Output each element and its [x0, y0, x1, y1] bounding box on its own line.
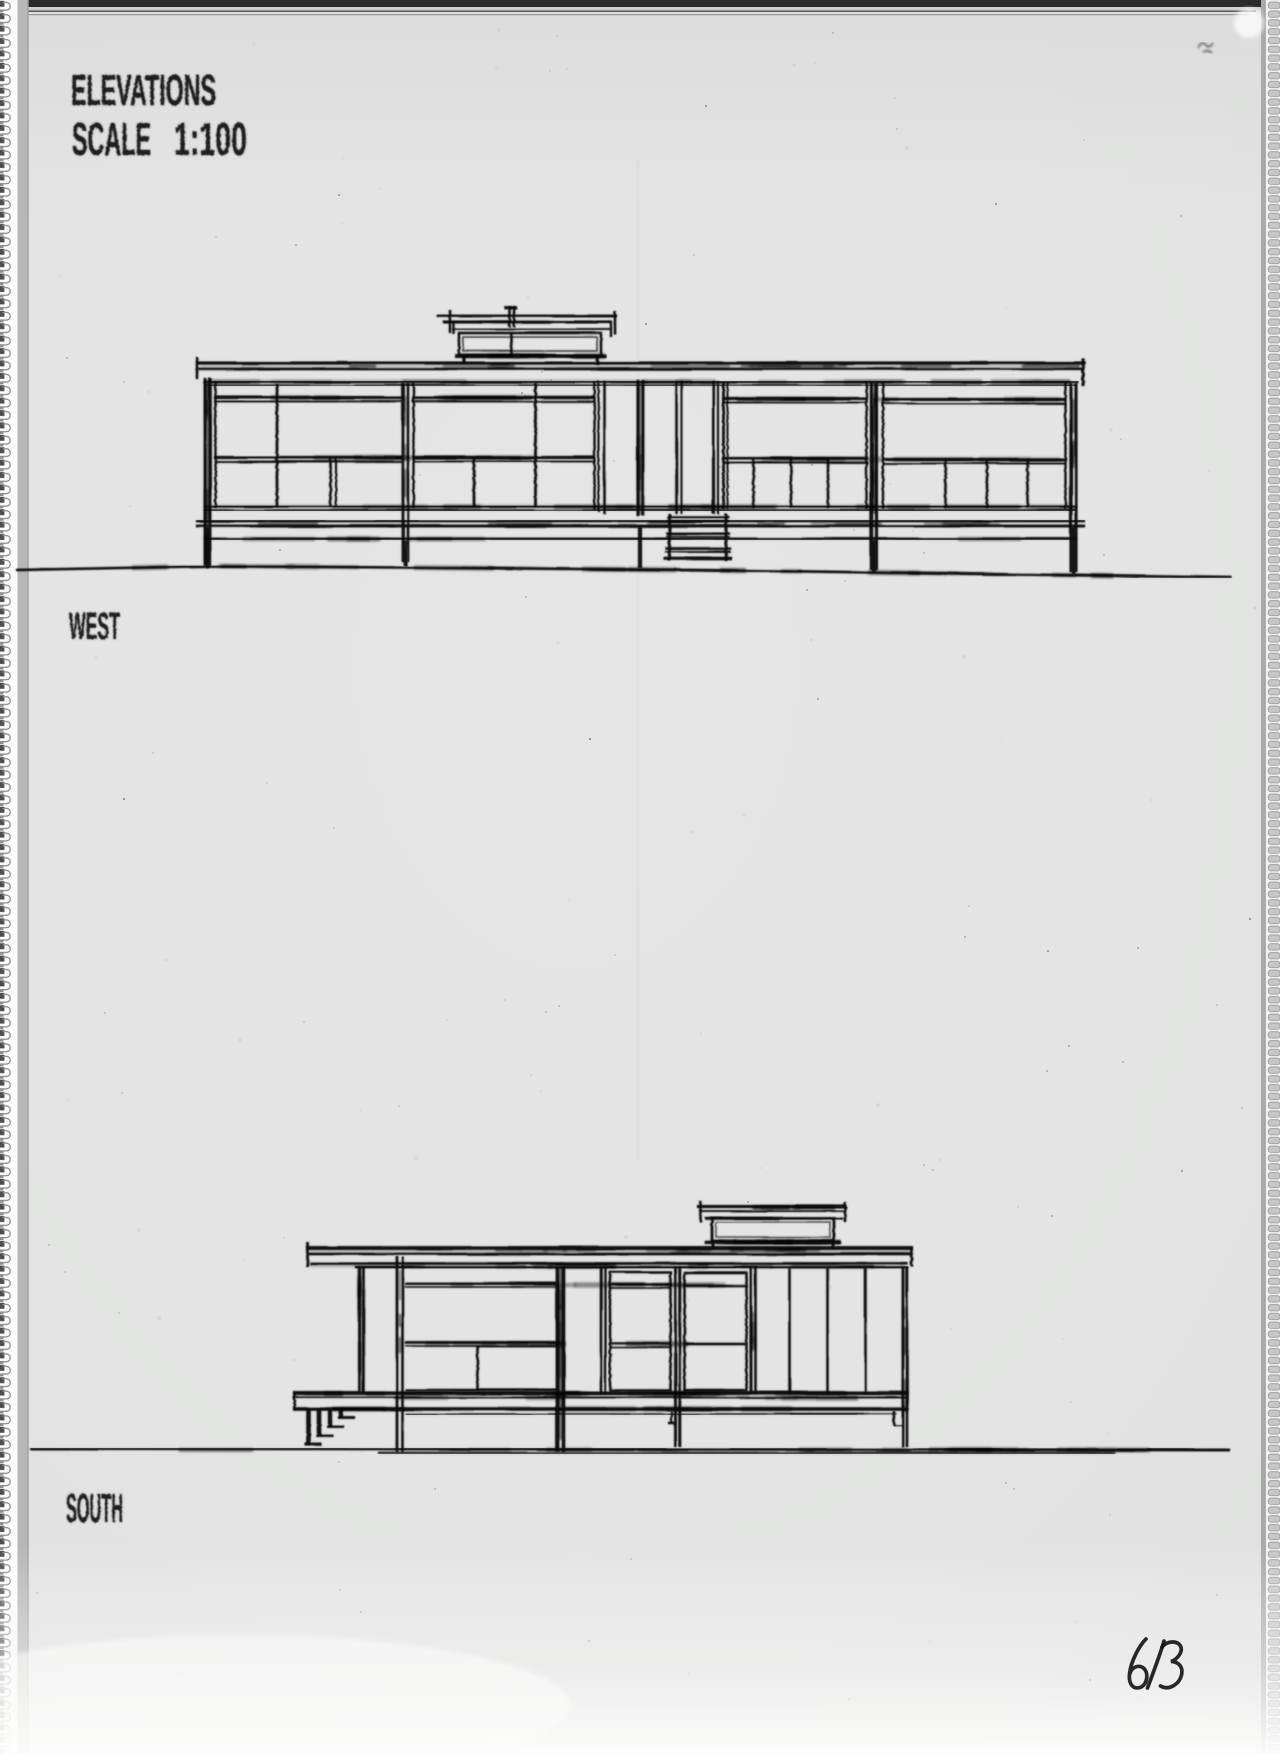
svg-text:WEST: WEST: [69, 606, 120, 648]
svg-text:SCALE: SCALE: [72, 113, 151, 165]
svg-text:ELEVATIONS: ELEVATIONS: [71, 66, 216, 115]
svg-text:SOUTH: SOUTH: [66, 1485, 123, 1531]
svg-text:1:100: 1:100: [174, 113, 247, 165]
